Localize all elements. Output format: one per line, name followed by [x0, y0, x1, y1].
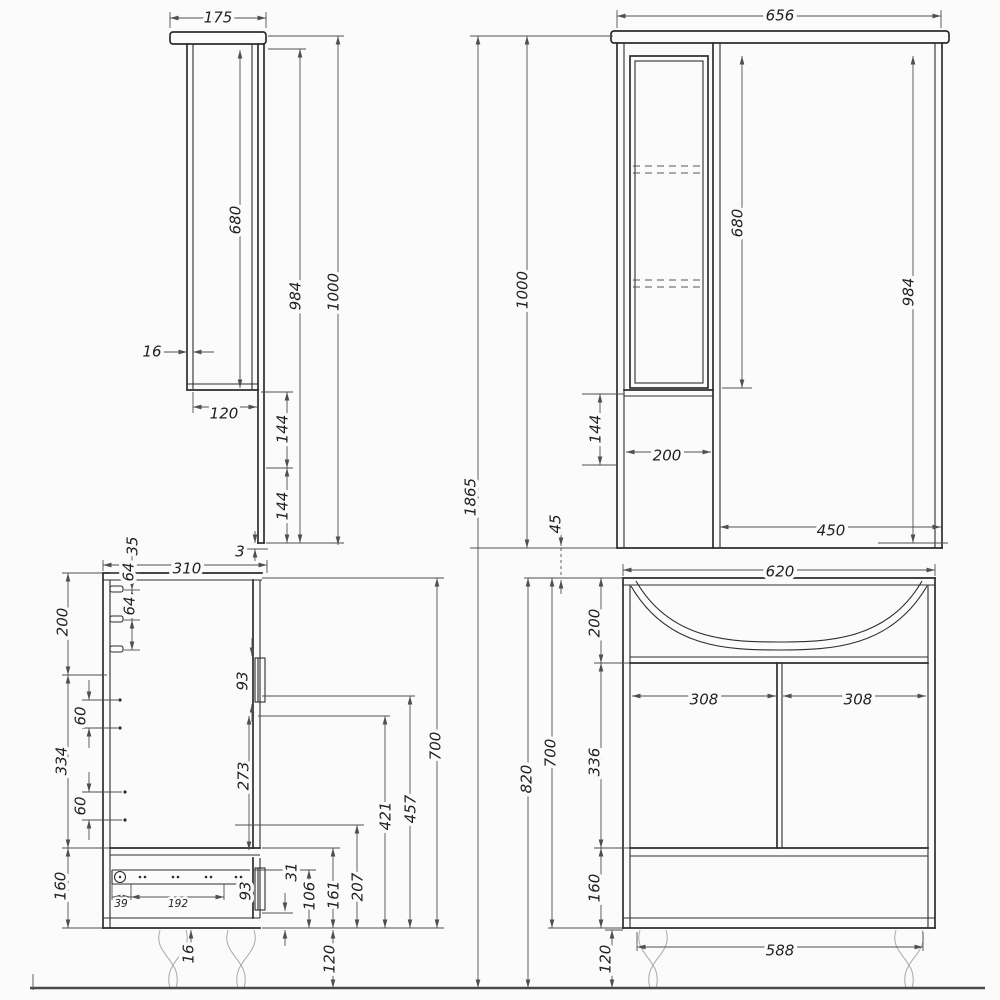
dim-label-gap-45: 45: [547, 514, 565, 533]
dim-label-r421: 421: [377, 802, 395, 831]
technical-drawing: 175 16 680 984 1000 120 144 144 3: [0, 0, 1000, 1000]
dim-label-drawer-handle: 93: [237, 881, 255, 900]
dim-label-mirror-column-width: 200: [653, 447, 682, 465]
shelf-pin-hole: [118, 726, 121, 729]
dim-label-pin-spacing-2: 60: [72, 796, 90, 815]
dim-label-hook-pitch-2: 64: [121, 596, 139, 615]
dim-label-leg-span: 588: [766, 942, 795, 960]
dim-label-sink-section: 200: [586, 609, 604, 638]
dim-label-overall-height: 1865: [462, 478, 480, 516]
dim-label-r106: 106: [301, 882, 319, 911]
dim-label-door-span: 273: [235, 762, 253, 791]
dim-label-vanity-width: 620: [766, 563, 795, 581]
dim-label-door-left-width: 308: [690, 691, 719, 709]
dim-label-slide-front: 39: [114, 898, 128, 910]
dim-label-side-legs: 120: [321, 945, 339, 974]
dim-label-door-handle: 93: [234, 671, 252, 690]
shelf-pin-hole: [123, 790, 126, 793]
dim-label-mirror-depth: 175: [204, 9, 233, 27]
dim-label-mirror-glass-width: 450: [817, 522, 846, 540]
dim-label-mirror-lower: 144: [587, 415, 605, 444]
shelf-pin-hole: [118, 698, 121, 701]
dim-label-bottom-panel: 16: [180, 944, 198, 963]
dim-label-hook-pitch-1: 64: [120, 562, 138, 581]
dim-label-pin-spacing-1: 60: [72, 706, 90, 725]
shelf-pin-hole: [123, 818, 126, 821]
dim-label-mirror-total-height: 1000: [325, 273, 343, 311]
dim-label-mirror-wall: 16: [142, 343, 161, 361]
dim-label-side-bottom: 160: [52, 872, 70, 901]
dim-label-r207: 207: [349, 872, 367, 901]
dim-label-mirror-front-box: 680: [729, 209, 747, 238]
dim-label-door-right-width: 308: [844, 691, 873, 709]
dim-label-mirror-panel1: 144: [274, 415, 292, 444]
dim-label-door-section: 336: [586, 748, 604, 777]
dim-label-vanity-total-height: 820: [518, 765, 536, 794]
dim-label-slide-pitch: 192: [168, 898, 188, 910]
dim-label-side-middle: 334: [53, 747, 71, 776]
dim-label-mirror-panel2: 144: [274, 492, 292, 521]
dim-label-r457: 457: [402, 794, 420, 823]
dim-label-mirror-inner-height: 984: [287, 282, 305, 311]
dim-label-side-top: 200: [54, 608, 72, 637]
dim-label-vanity-depth: 310: [173, 560, 202, 578]
dim-label-mirror-gap: 3: [235, 543, 245, 561]
dim-label-vanity-body-height: 700: [542, 739, 560, 768]
dim-label-r161: 161: [325, 881, 343, 910]
dim-label-front-legs: 120: [597, 945, 615, 974]
dim-label-r700: 700: [427, 732, 445, 761]
dim-label-hook-offset: 35: [124, 536, 142, 555]
dim-label-drawer-section: 160: [586, 874, 604, 903]
dim-label-mirror-front-inner: 984: [900, 278, 918, 307]
dim-label-mirror-front-total: 1000: [514, 271, 532, 309]
drawing-background: [0, 0, 1000, 1000]
dim-label-mirror-bottom-depth: 120: [210, 405, 239, 423]
dim-label-mirror-width: 656: [766, 7, 795, 25]
dim-label-r31: 31: [283, 862, 301, 881]
dim-label-mirror-box-height: 680: [227, 206, 245, 235]
